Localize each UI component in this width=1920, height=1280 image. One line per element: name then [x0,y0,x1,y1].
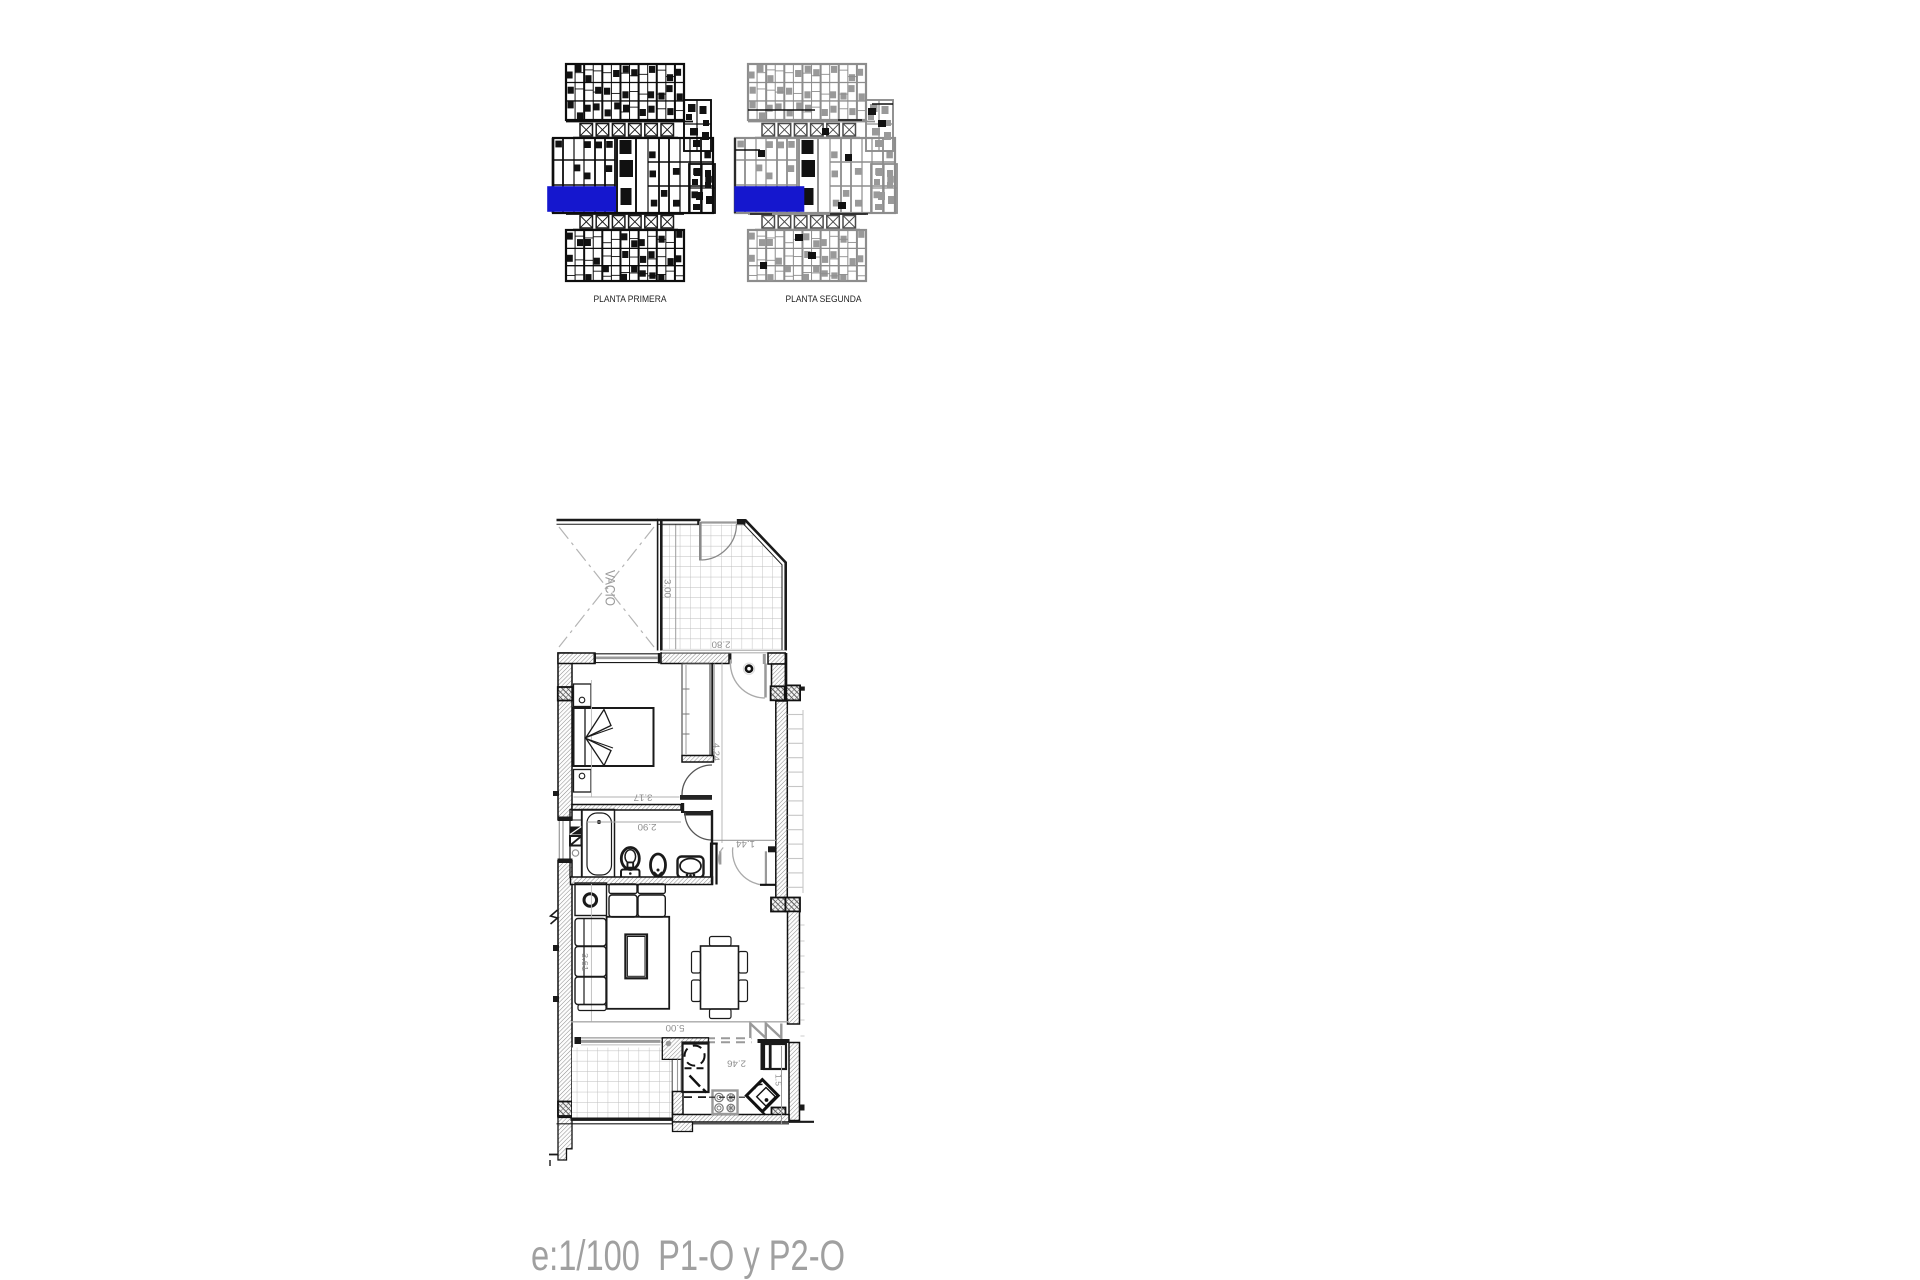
svg-text:5.00: 5.00 [666,1023,685,1033]
svg-text:PLANTA SEGUNDA: PLANTA SEGUNDA [786,294,863,305]
svg-text:4.24: 4.24 [712,743,722,761]
svg-text:e:1/100 P1-O y P2-O: e:1/100 P1-O y P2-O [531,1232,845,1280]
svg-text:2.46: 2.46 [727,1059,746,1069]
svg-text:1.5: 1.5 [774,1074,783,1087]
svg-text:VACIO: VACIO [603,570,618,606]
svg-text:2.90: 2.90 [638,822,657,832]
svg-text:3.17: 3.17 [634,793,653,803]
svg-text:3.61: 3.61 [580,953,590,971]
svg-text:PLANTA PRIMERA: PLANTA PRIMERA [594,294,668,305]
svg-text:3.00: 3.00 [663,579,673,598]
svg-text:2.80: 2.80 [712,640,731,650]
